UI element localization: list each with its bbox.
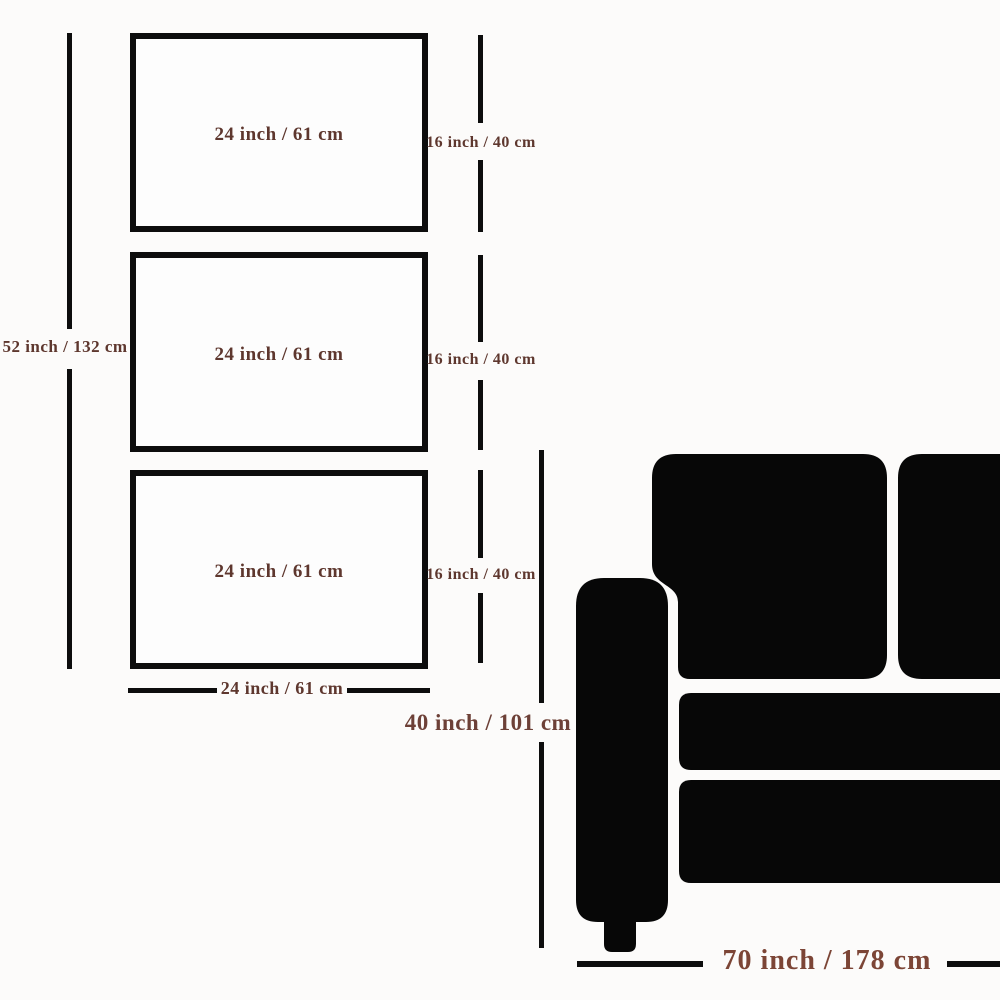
sofa-silhouette (0, 0, 1000, 1000)
sofa-width-line-left (577, 961, 703, 967)
sofa-height-line-top (539, 450, 544, 703)
sofa-back-cushion-left (652, 454, 887, 679)
sofa-armrest (576, 578, 668, 922)
size-chart-diagram: 24 inch / 61 cm 24 inch / 61 cm 24 inch … (0, 0, 1000, 1000)
sofa-seat-cushion (679, 693, 1000, 770)
sofa-base (679, 780, 1000, 883)
sofa-height-label: 40 inch / 101 cm (398, 710, 578, 735)
sofa-width-label: 70 inch / 178 cm (707, 946, 947, 977)
sofa-armrest-foot (604, 918, 636, 952)
sofa-back-cushion-right (898, 454, 1000, 679)
sofa-height-line-bottom (539, 742, 544, 948)
sofa-width-line-right (947, 961, 1000, 967)
